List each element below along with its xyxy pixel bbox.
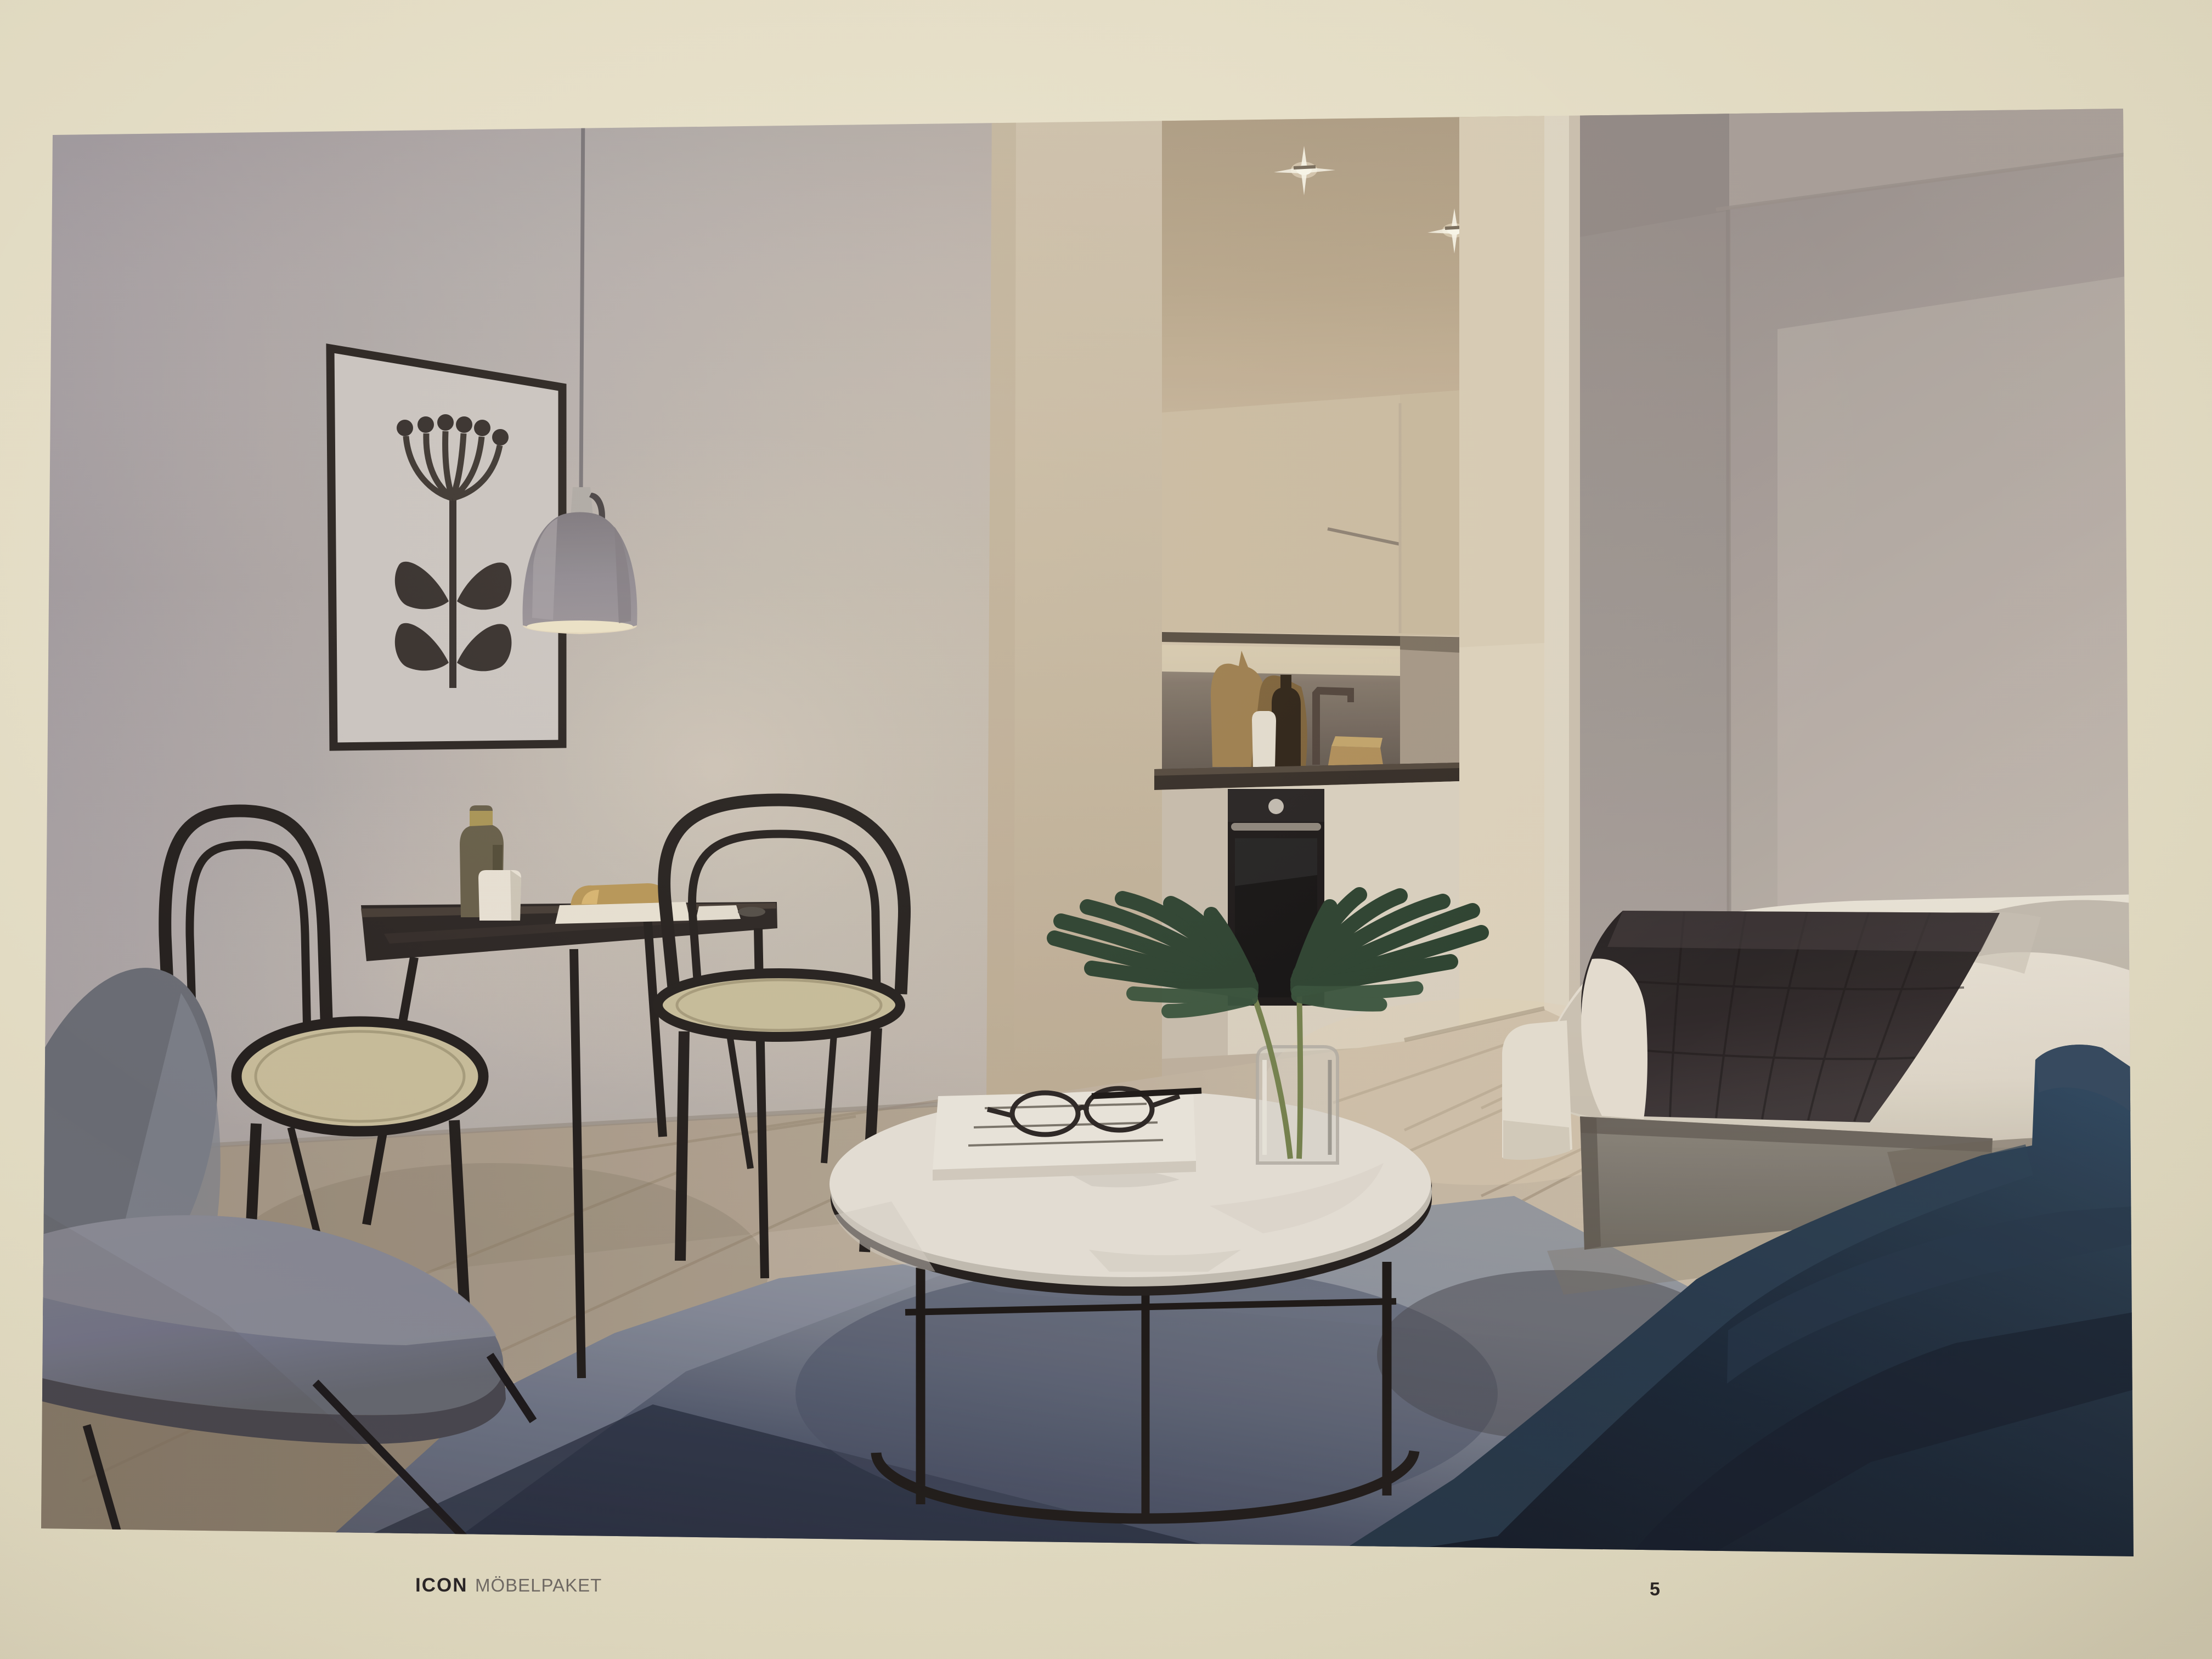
svg-text:MÖBELPAKET: MÖBELPAKET <box>475 1575 602 1595</box>
svg-text:ICON: ICON <box>415 1575 468 1596</box>
svg-text:5: 5 <box>1650 1579 1660 1600</box>
